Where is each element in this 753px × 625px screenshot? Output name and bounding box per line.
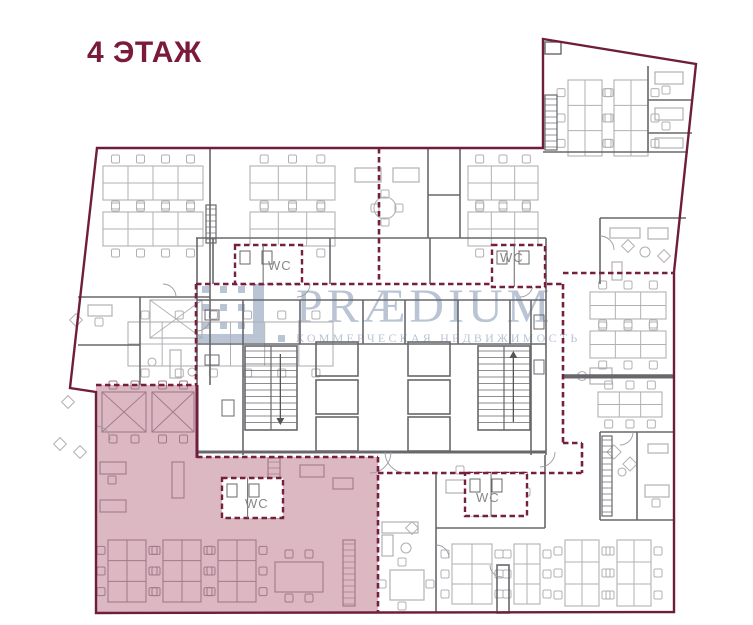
wc-room-bottom-right: WC [465, 473, 527, 516]
floor-title: 4 ЭТАЖ [87, 36, 202, 70]
stairs-right-icon [478, 346, 530, 430]
stairs-left-icon [245, 346, 297, 430]
wc-label: WC [268, 258, 292, 273]
floor-plan: PRÆDIUMКОММЕРЧЕСКАЯ НЕДВИЖИМОСТЬWCWCWCWC [0, 0, 753, 625]
watermark: PRÆDIUMКОММЕРЧЕСКАЯ НЕДВИЖИМОСТЬ [196, 280, 581, 345]
elevator-bank [316, 342, 450, 451]
wc-label: WC [245, 496, 269, 511]
wc-room-top-left: WC [235, 245, 302, 284]
watermark-brand: PRÆDIUM [296, 280, 553, 333]
wc-label: WC [500, 250, 524, 265]
wc-room-bottom-left: WC [222, 478, 283, 518]
floorplan-canvas: 4 ЭТАЖ PRÆDIUMКОММЕРЧЕСКАЯ НЕДВИЖИМОСТЬW… [0, 0, 753, 625]
wc-label: WC [476, 490, 500, 505]
watermark-subtitle: КОММЕРЧЕСКАЯ НЕДВИЖИМОСТЬ [296, 331, 581, 345]
wc-room-top-right: WC [492, 245, 545, 287]
